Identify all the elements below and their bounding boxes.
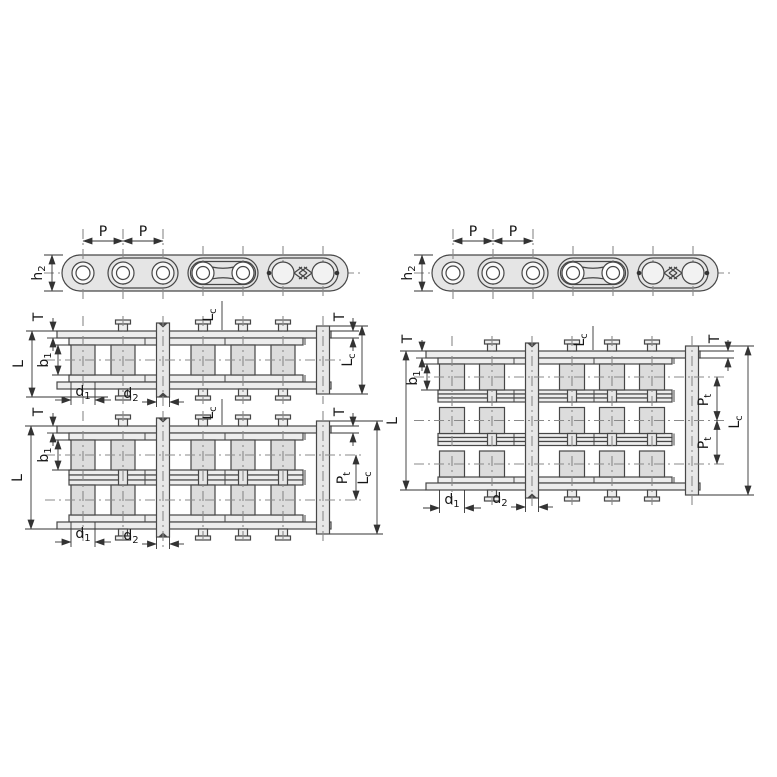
outer-plate <box>426 483 700 490</box>
dim-label-Lc: Lc <box>201 406 219 419</box>
dim-label-Lc: Lc <box>727 415 745 428</box>
inner-plate <box>438 477 672 483</box>
outer-plate <box>426 351 700 358</box>
inner-plate <box>69 375 303 382</box>
middle-plate <box>438 398 672 402</box>
pin-end-dot <box>267 271 272 276</box>
inner-plate <box>69 433 303 440</box>
roller-circle <box>272 262 294 284</box>
dim-label-P: P <box>99 224 107 240</box>
pin-end-dot <box>637 271 642 276</box>
dim-label-Lc: Lc <box>201 308 219 321</box>
middle-plate <box>69 475 303 480</box>
dim-label-T: T <box>707 334 723 344</box>
figure-plan-simplex: TLb1d1d2LcLcT <box>11 301 368 409</box>
pin-circle <box>117 267 130 280</box>
dim-label-b1: b1 <box>405 370 423 385</box>
dim-label-T: T <box>400 334 416 344</box>
bush-circle <box>76 266 90 280</box>
pin-circle <box>157 267 170 280</box>
dim-label-P: P <box>139 224 147 240</box>
pin-circle <box>567 267 580 280</box>
middle-plate <box>69 480 303 485</box>
figure-plan-duplex: TLb1d1d2LcPtLcT <box>10 399 383 549</box>
outer-plate <box>57 426 331 433</box>
inner-plate <box>438 358 672 364</box>
middle-plate <box>438 438 672 442</box>
outer-plate <box>57 522 331 529</box>
dim-label-Pt: Pt <box>335 472 353 484</box>
dim-label-h2: h2 <box>400 265 418 280</box>
dim-label-d2: d2 <box>123 528 138 546</box>
dim-label-T: T <box>31 312 47 322</box>
roller-circle <box>642 262 664 284</box>
dim-label-b1: b1 <box>36 352 54 367</box>
dim-label-L: L <box>11 360 27 368</box>
roller-circle <box>682 262 704 284</box>
dim-label-Lc: Lc <box>340 353 358 366</box>
dim-label-T: T <box>332 407 348 417</box>
pin-end-dot <box>705 271 710 276</box>
pin-circle <box>237 267 250 280</box>
dim-label-Lc: Lc <box>356 471 374 484</box>
outer-plate <box>57 331 331 338</box>
figure-plan-triplex: TLb1d1d2LcPtPtLcT <box>385 326 754 513</box>
middle-plate <box>438 434 672 438</box>
pin-circle <box>527 267 540 280</box>
dim-label-P: P <box>509 224 517 240</box>
figure-side-view-left: PPh2 <box>30 224 364 300</box>
outer-plate <box>57 382 331 389</box>
dim-label-Lc: Lc <box>572 333 590 346</box>
dim-label-L: L <box>385 417 401 425</box>
technical-drawing-canvas: PPh2PPh2TLb1d1d2LcLcTTLb1d1d2LcPtLcTTLb1… <box>0 0 777 777</box>
dim-label-T: T <box>31 407 47 417</box>
middle-plate <box>438 390 672 394</box>
dim-label-h2: h2 <box>30 265 48 280</box>
bush-circle <box>446 266 460 280</box>
inner-plate <box>69 515 303 522</box>
dim-label-L: L <box>10 474 26 482</box>
pin-circle <box>487 267 500 280</box>
dim-label-b1: b1 <box>36 447 54 462</box>
dim-label-T: T <box>332 312 348 322</box>
middle-plate <box>438 394 672 398</box>
dim-label-d2: d2 <box>492 491 507 509</box>
dim-label-P: P <box>469 224 477 240</box>
dim-label-d1: d1 <box>444 492 459 510</box>
roller-circle <box>312 262 334 284</box>
figure-side-view-right: PPh2 <box>400 224 734 300</box>
pin-end-dot <box>335 271 340 276</box>
pin-circle <box>197 267 210 280</box>
pin-circle <box>607 267 620 280</box>
middle-plate <box>69 470 303 475</box>
roller-chain-diagram: PPh2PPh2TLb1d1d2LcLcTTLb1d1d2LcPtLcTTLb1… <box>0 0 777 777</box>
middle-plate <box>438 442 672 446</box>
inner-plate <box>69 338 303 345</box>
